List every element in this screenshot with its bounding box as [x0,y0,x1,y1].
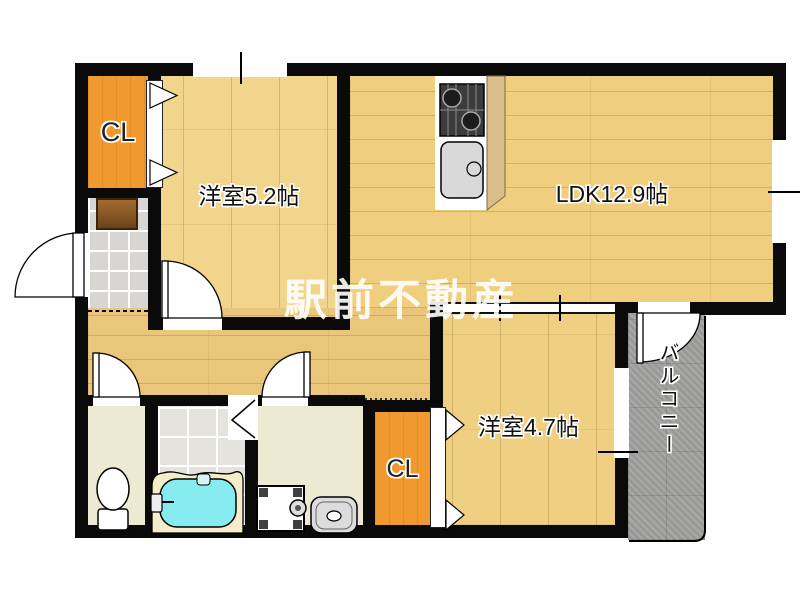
balcony-door-gap [638,302,690,315]
closet-top-door-panel [146,80,163,188]
bedroom-47-label: 洋室4.7帖 [442,408,615,442]
wall-top [75,63,786,76]
toilet-door-gap [93,395,140,406]
wall-ldk-south-east [688,302,786,315]
wall-balcony-north [615,302,640,313]
bedroom52-door-gap [163,317,222,330]
watermark-text: 駅前不動産 [284,266,519,328]
window-marker-balcony [614,368,629,458]
wall-washroom-east [363,400,375,538]
balcony-label: バルコニー [653,342,682,487]
entrance-mat [96,198,138,230]
closet-bottom-label: CL [375,455,430,484]
entrance-door-swing [15,233,79,297]
bedroom-52-label: 洋室5.2帖 [161,177,337,211]
wall-closet-top-south [83,188,148,198]
closet-top-label: CL [88,117,148,148]
window-marker-right [772,140,787,243]
wall-left [75,63,88,538]
washroom-floor [258,406,363,525]
washroom-door-gap [262,395,308,406]
ldk-label: LDK12.9帖 [482,175,742,209]
wall-toilet-east [145,398,158,538]
wall-bath-east [245,435,258,538]
toilet-room-floor [88,406,145,525]
bath-folding-door-gap [228,395,258,440]
entrance-door-gap [75,233,88,297]
window-marker-top [193,62,287,77]
floor-plan: CL 洋室5.2帖 LDK12.9帖 洋室4.7帖 CL バルコニー 駅前不動産 [0,0,800,600]
